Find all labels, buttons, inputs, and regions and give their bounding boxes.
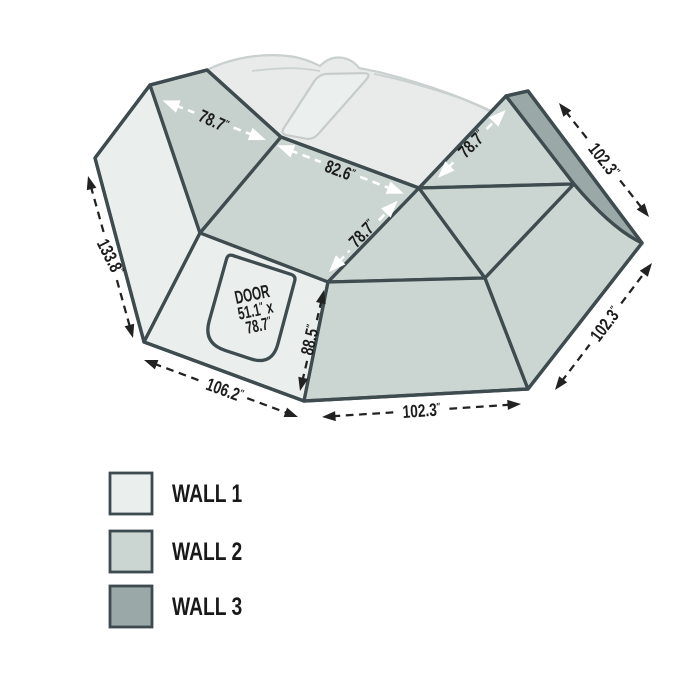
svg-text:102.3″: 102.3″	[402, 401, 442, 423]
svg-text:WALL 3: WALL 3	[172, 593, 242, 621]
svg-text:WALL 1: WALL 1	[172, 480, 242, 508]
svg-text:WALL 2: WALL 2	[172, 538, 242, 566]
